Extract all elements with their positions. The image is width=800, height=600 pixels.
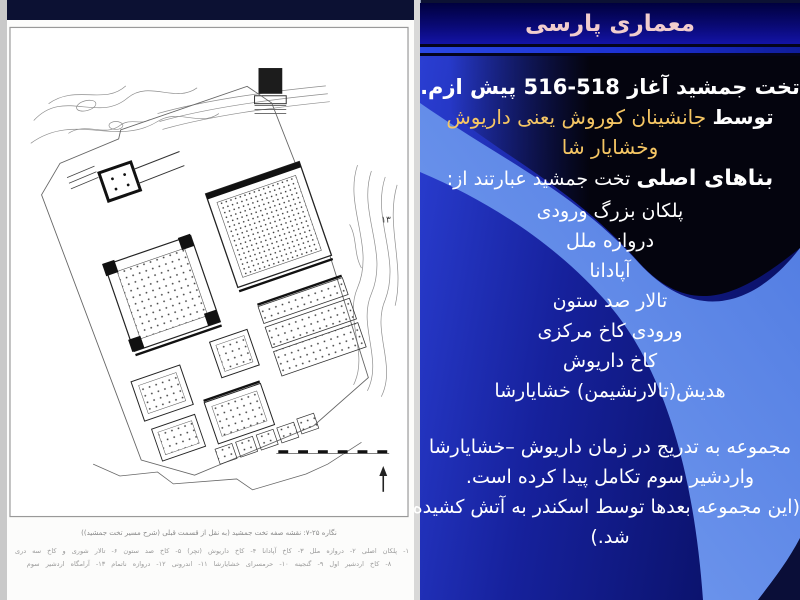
heading-by-rest: جانشینان کوروش یعنی داریوش	[446, 105, 712, 129]
text-gap	[420, 406, 800, 432]
paragraph-line-3: (این مجموعه بعدها توسط اسکندر به آتش کشی…	[420, 492, 800, 522]
slide-root: ۱۳	[0, 0, 800, 600]
paragraph-line-4: شد.)	[420, 522, 800, 552]
figure-caption: نگاره ۲۵-۷: نقشه صفه تخت جمشید (به نقل ا…	[9, 528, 409, 571]
heading-dates: تخت جمشید آغاز 518-516 پیش ازم.	[420, 72, 800, 102]
slide-title-bar: معماری پارسی	[420, 3, 800, 44]
figure-legend-line1: ۱- پلکان اصلی ۲- دروازه ملل ۳- کاخ آپادا…	[9, 545, 409, 558]
building-item-hundred-columns: تالار صد ستون	[420, 286, 800, 316]
figure-frame	[10, 27, 408, 516]
scanned-page: ۱۳	[7, 20, 414, 600]
building-item-gate: دروازه ملل	[420, 226, 800, 256]
building-item-apadana: آپادانا	[420, 256, 800, 286]
heading-kings: وخشایار شا	[420, 132, 800, 162]
building-item-hadish: هدیش(تالارنشیمن) خشایارشا	[420, 376, 800, 406]
page-left-edge	[0, 0, 7, 600]
buildings-intro: بناهای اصلی تخت جمشید عبارتند از:	[420, 162, 800, 196]
paragraph-line-2: واردشیر سوم تکامل پیدا کرده است.	[420, 462, 800, 492]
buildings-intro-rest: تخت جمشید عبارتند از:	[447, 168, 637, 190]
building-item-darius-palace: کاخ داریوش	[420, 346, 800, 376]
heading-by-line: توسط جانشینان کوروش یعنی داریوش	[420, 102, 800, 132]
persepolis-site-plan: ۱۳	[9, 26, 409, 518]
figure-caption-title: نگاره ۲۵-۷: نقشه صفه تخت جمشید (به نقل ا…	[9, 528, 409, 538]
paragraph-line-1: مجموعه به تدریج در زمان داریوش –خشایارشا	[420, 432, 800, 462]
heading-by-prefix: توسط	[712, 105, 773, 129]
buildings-intro-bold: بناهای اصلی	[636, 166, 773, 191]
map-label-13: ۱۳	[381, 215, 391, 225]
building-item-stairway: پلکان بزرگ ورودی	[420, 196, 800, 226]
slide-title: معماری پارسی	[525, 11, 695, 37]
slide-body-text: تخت جمشید آغاز 518-516 پیش ازم. توسط جان…	[420, 56, 800, 600]
building-item-central-entry: ورودی کاخ مرکزی	[420, 316, 800, 346]
figure-legend-line2: ۸- کاخ اردشیر اول ۹- گنجینه ۱۰- حرمسرای …	[9, 558, 409, 571]
